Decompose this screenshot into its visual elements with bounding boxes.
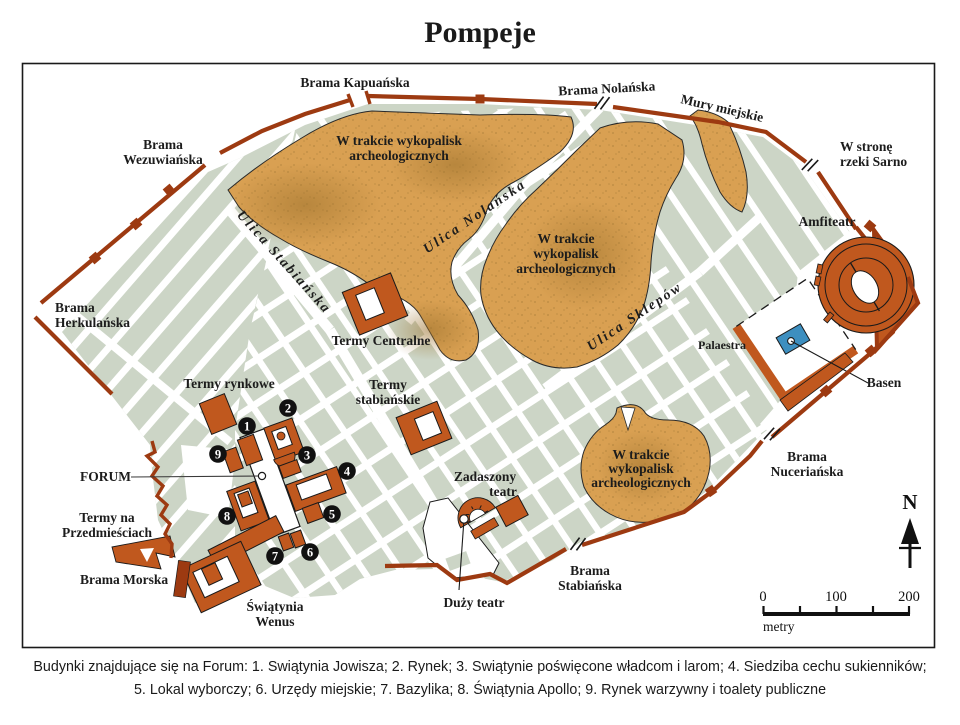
svg-text:200: 200 xyxy=(898,589,920,605)
svg-text:100: 100 xyxy=(825,589,847,605)
svg-text:rzeki Sarno: rzeki Sarno xyxy=(840,154,907,169)
svg-text:Termy na: Termy na xyxy=(79,510,135,525)
svg-text:wykopalisk: wykopalisk xyxy=(608,461,674,476)
svg-text:Brama: Brama xyxy=(55,300,95,315)
svg-text:Termy Centralne: Termy Centralne xyxy=(332,333,431,348)
svg-text:0: 0 xyxy=(759,589,766,605)
svg-text:Basen: Basen xyxy=(867,375,902,390)
svg-text:5: 5 xyxy=(329,507,335,521)
svg-text:Termy: Termy xyxy=(369,377,407,392)
svg-text:wykopalisk: wykopalisk xyxy=(533,246,599,261)
svg-text:W trakcie: W trakcie xyxy=(612,447,669,462)
svg-text:Pompeje: Pompeje xyxy=(424,16,536,49)
svg-text:W trakcie: W trakcie xyxy=(537,231,594,246)
svg-text:Brama: Brama xyxy=(143,137,183,152)
svg-text:teatr: teatr xyxy=(489,484,517,499)
svg-text:W trakcie wykopalisk: W trakcie wykopalisk xyxy=(336,133,462,148)
svg-text:Zadaszony: Zadaszony xyxy=(454,469,517,484)
svg-text:4: 4 xyxy=(344,464,351,478)
svg-text:1: 1 xyxy=(244,419,250,433)
svg-text:archeologicznych: archeologicznych xyxy=(516,261,616,276)
svg-text:Brama Morska: Brama Morska xyxy=(80,572,168,587)
svg-text:2: 2 xyxy=(285,401,291,415)
svg-text:Nuceriańska: Nuceriańska xyxy=(771,464,844,479)
svg-text:stabiańskie: stabiańskie xyxy=(356,392,421,407)
svg-text:Przedmieściach: Przedmieściach xyxy=(62,525,152,540)
svg-text:8: 8 xyxy=(224,509,230,523)
svg-text:Herkulańska: Herkulańska xyxy=(55,315,130,330)
svg-text:3: 3 xyxy=(304,448,310,462)
svg-text:archeologicznych: archeologicznych xyxy=(349,148,449,163)
svg-text:archeologicznych: archeologicznych xyxy=(591,475,691,490)
svg-text:Brama: Brama xyxy=(787,449,827,464)
svg-text:FORUM: FORUM xyxy=(80,469,131,484)
svg-text:Brama: Brama xyxy=(570,563,610,578)
svg-text:W stronę: W stronę xyxy=(840,139,892,154)
svg-text:Wezuwiańska: Wezuwiańska xyxy=(123,152,203,167)
svg-text:6: 6 xyxy=(307,545,313,559)
svg-text:7: 7 xyxy=(272,549,278,563)
svg-text:Termy rynkowe: Termy rynkowe xyxy=(183,376,274,391)
svg-text:Wenus: Wenus xyxy=(255,614,294,629)
svg-text:Palaestra: Palaestra xyxy=(698,338,746,352)
svg-text:Świątynia: Świątynia xyxy=(246,599,303,614)
svg-text:Duży teatr: Duży teatr xyxy=(443,595,504,610)
svg-text:metry: metry xyxy=(763,619,795,634)
svg-text:N: N xyxy=(902,490,917,514)
svg-text:Stabiańska: Stabiańska xyxy=(558,578,622,593)
svg-text:9: 9 xyxy=(215,447,221,461)
svg-text:Amfiteatr: Amfiteatr xyxy=(799,214,856,229)
svg-text:Brama Kapuańska: Brama Kapuańska xyxy=(300,75,409,90)
